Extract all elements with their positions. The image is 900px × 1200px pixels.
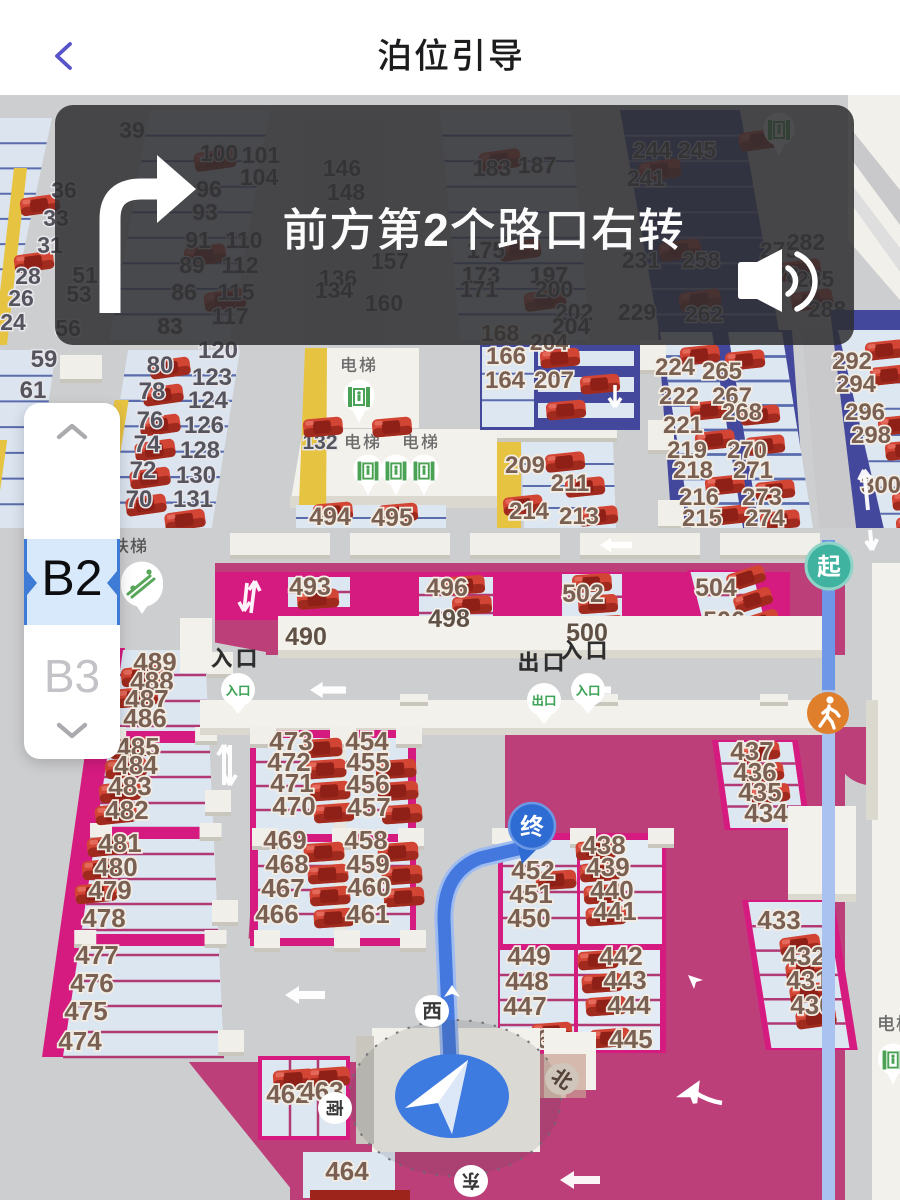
svg-text:207: 207 — [534, 367, 574, 394]
svg-text:72: 72 — [130, 457, 157, 484]
svg-text:457: 457 — [347, 792, 390, 822]
svg-text:218: 218 — [673, 457, 713, 484]
svg-text:486: 486 — [123, 703, 166, 733]
svg-text:461: 461 — [346, 899, 389, 929]
svg-text:478: 478 — [82, 903, 125, 933]
svg-text:224: 224 — [655, 354, 696, 381]
svg-text:450: 450 — [507, 903, 550, 933]
svg-text:474: 474 — [58, 1026, 102, 1056]
svg-text:460: 460 — [347, 872, 390, 902]
svg-text:464: 464 — [325, 1156, 369, 1186]
svg-text:213: 213 — [559, 503, 599, 530]
svg-text:221: 221 — [663, 412, 703, 439]
svg-text:78: 78 — [139, 378, 166, 405]
svg-text:268: 268 — [722, 399, 762, 426]
svg-text:265: 265 — [702, 358, 742, 385]
svg-text:493: 493 — [289, 573, 331, 601]
svg-text:131: 131 — [173, 486, 213, 513]
svg-text:490: 490 — [285, 623, 327, 651]
svg-text:130: 130 — [176, 462, 216, 489]
svg-text:76: 76 — [137, 407, 164, 434]
svg-text:444: 444 — [607, 990, 651, 1020]
svg-text:164: 164 — [485, 367, 526, 394]
svg-text:494: 494 — [309, 503, 351, 531]
svg-text:445: 445 — [609, 1024, 652, 1054]
svg-text:479: 479 — [88, 875, 131, 905]
svg-text:74: 74 — [134, 431, 161, 458]
svg-text:434: 434 — [744, 798, 788, 828]
svg-text:209: 209 — [505, 452, 545, 479]
svg-text:477: 477 — [75, 940, 118, 970]
svg-text:504: 504 — [695, 574, 737, 602]
svg-text:496: 496 — [426, 574, 468, 602]
svg-text:470: 470 — [272, 791, 315, 821]
svg-text:294: 294 — [836, 371, 877, 398]
svg-text:59: 59 — [31, 346, 58, 373]
svg-text:222: 222 — [659, 383, 699, 410]
svg-text:495: 495 — [371, 504, 413, 532]
svg-text:80: 80 — [147, 352, 174, 379]
svg-text:70: 70 — [126, 486, 153, 513]
svg-text:2: 2 — [423, 204, 449, 256]
svg-text:61: 61 — [20, 377, 47, 404]
svg-text:475: 475 — [64, 996, 107, 1026]
svg-text:482: 482 — [105, 795, 148, 825]
svg-text:215: 215 — [682, 505, 722, 532]
svg-text:433: 433 — [757, 905, 800, 935]
svg-text:498: 498 — [428, 605, 470, 633]
svg-text:441: 441 — [593, 896, 636, 926]
svg-text:128: 128 — [180, 437, 220, 464]
svg-text:124: 124 — [188, 387, 229, 414]
svg-text:274: 274 — [745, 505, 786, 532]
svg-text:466: 466 — [255, 899, 298, 929]
svg-text:298: 298 — [851, 422, 891, 449]
svg-text:214: 214 — [509, 498, 550, 525]
svg-text:476: 476 — [70, 968, 113, 998]
svg-text:271: 271 — [733, 457, 773, 484]
svg-text:447: 447 — [503, 991, 546, 1021]
svg-text:126: 126 — [184, 412, 224, 439]
svg-text:502: 502 — [562, 580, 604, 608]
svg-text:211: 211 — [551, 470, 590, 497]
